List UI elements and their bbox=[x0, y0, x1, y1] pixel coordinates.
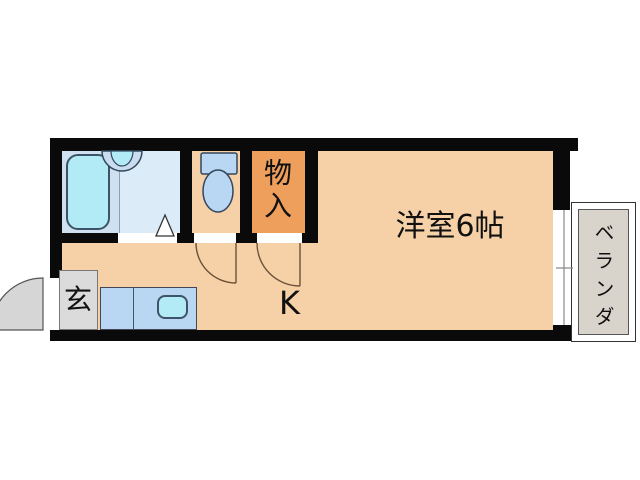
toilet-bowl-icon bbox=[203, 170, 233, 212]
entrance-door-swing-icon bbox=[0, 278, 43, 330]
veranda-label: ベランダ bbox=[593, 222, 613, 334]
main-room-label: 洋室6帖 bbox=[380, 212, 520, 242]
storage-door-swing-arc bbox=[257, 243, 300, 286]
toilet-door-swing-arc bbox=[196, 243, 236, 283]
kitchen-label: K bbox=[279, 287, 300, 319]
fixtures-layer bbox=[0, 0, 640, 480]
entrance-label: 玄 bbox=[64, 286, 92, 314]
storage-label: 物入 bbox=[262, 158, 290, 224]
bathroom-door-triangle-icon bbox=[156, 215, 174, 236]
floor-plan: 物入 洋室6帖 K 玄 ベランダ bbox=[0, 0, 640, 480]
